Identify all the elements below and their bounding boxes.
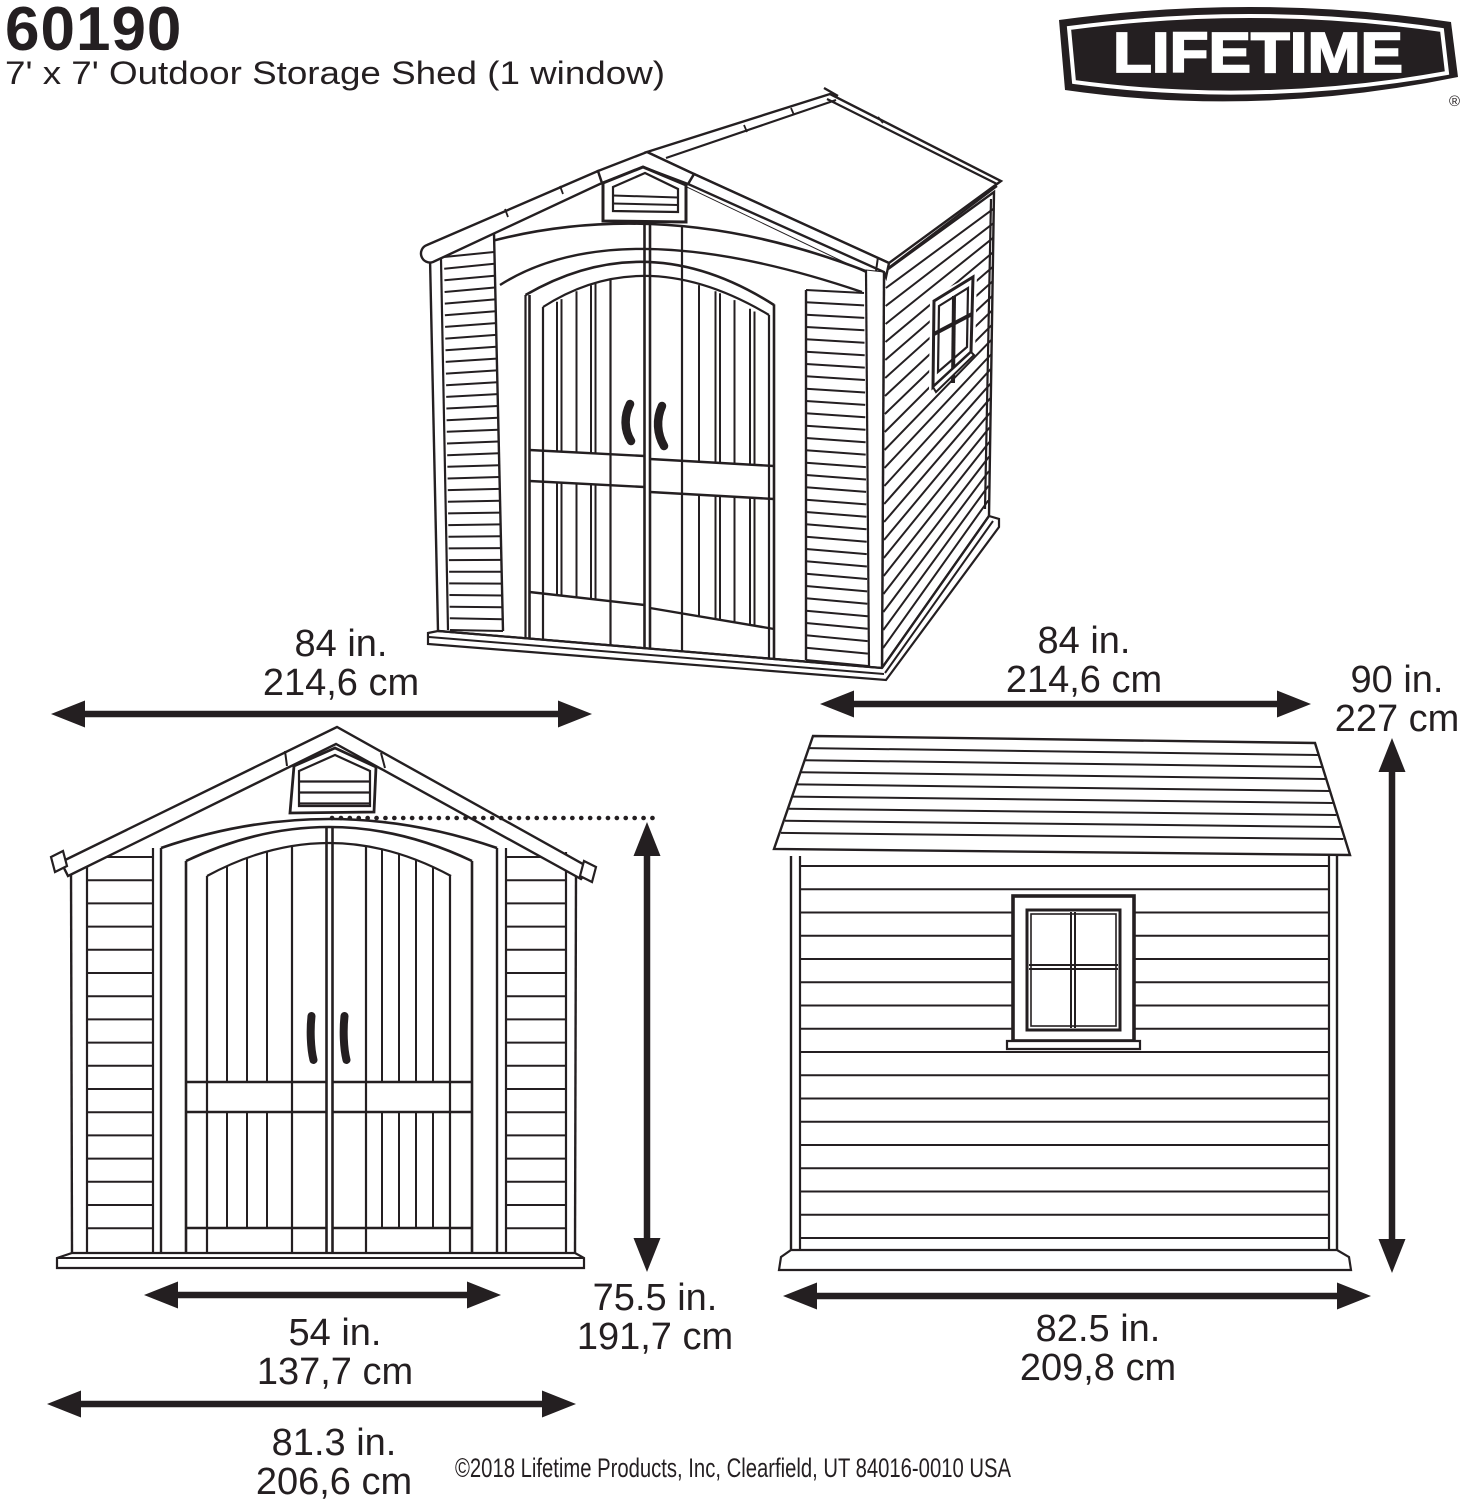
svg-text:®: ® <box>1449 93 1460 110</box>
svg-text:137,7 cm: 137,7 cm <box>257 1351 413 1393</box>
svg-text:191,7 cm: 191,7 cm <box>577 1316 733 1358</box>
svg-text:206,6 cm: 206,6 cm <box>256 1461 412 1500</box>
svg-text:90 in.: 90 in. <box>1351 659 1444 701</box>
svg-text:84 in.: 84 in. <box>295 623 388 665</box>
svg-text:227 cm: 227 cm <box>1335 698 1460 740</box>
svg-text:214,6 cm: 214,6 cm <box>1006 659 1162 701</box>
svg-text:214,6 cm: 214,6 cm <box>263 662 419 704</box>
svg-text:©2018 Lifetime Products, Inc,: ©2018 Lifetime Products, Inc, Clearfield… <box>455 1453 1011 1483</box>
svg-text:LIFETIME: LIFETIME <box>1113 21 1403 85</box>
svg-text:75.5 in.: 75.5 in. <box>593 1277 718 1319</box>
svg-text:84 in.: 84 in. <box>1038 620 1131 662</box>
svg-text:82.5 in.: 82.5 in. <box>1036 1308 1161 1350</box>
svg-text:7' x 7' Outdoor Storage Shed (: 7' x 7' Outdoor Storage Shed (1 window) <box>5 55 665 91</box>
svg-text:81.3 in.: 81.3 in. <box>272 1422 397 1464</box>
svg-text:54 in.: 54 in. <box>289 1312 382 1354</box>
svg-text:209,8 cm: 209,8 cm <box>1020 1347 1176 1389</box>
